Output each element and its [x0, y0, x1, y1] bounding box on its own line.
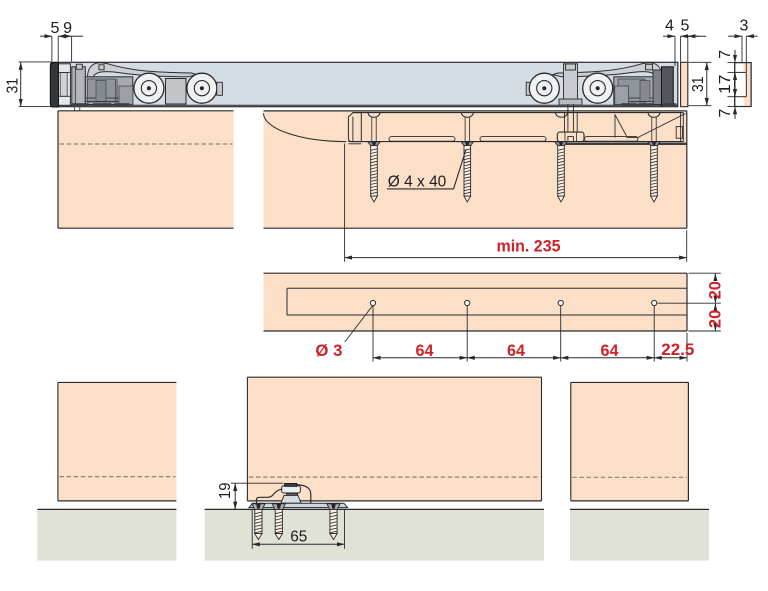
- svg-text:17: 17: [717, 74, 734, 94]
- svg-text:Ø 3: Ø 3: [315, 342, 342, 360]
- svg-text:Ø 4 x 40: Ø 4 x 40: [388, 173, 447, 190]
- svg-text:3: 3: [739, 17, 748, 34]
- svg-text:64: 64: [507, 342, 526, 360]
- svg-text:64: 64: [601, 342, 620, 360]
- svg-text:19: 19: [217, 482, 234, 499]
- svg-text:31: 31: [4, 78, 21, 94]
- svg-text:22.5: 22.5: [661, 341, 694, 359]
- svg-text:9: 9: [63, 20, 72, 37]
- svg-text:7: 7: [717, 109, 734, 118]
- svg-text:7: 7: [717, 50, 734, 59]
- svg-text:4: 4: [665, 17, 674, 34]
- svg-text:5: 5: [50, 20, 59, 37]
- svg-text:31: 31: [690, 76, 707, 92]
- svg-text:65: 65: [290, 528, 307, 545]
- svg-text:min. 235: min. 235: [497, 237, 561, 255]
- svg-text:5: 5: [680, 17, 689, 34]
- svg-text:20: 20: [706, 310, 724, 328]
- svg-text:20: 20: [706, 281, 724, 299]
- svg-text:64: 64: [416, 342, 435, 360]
